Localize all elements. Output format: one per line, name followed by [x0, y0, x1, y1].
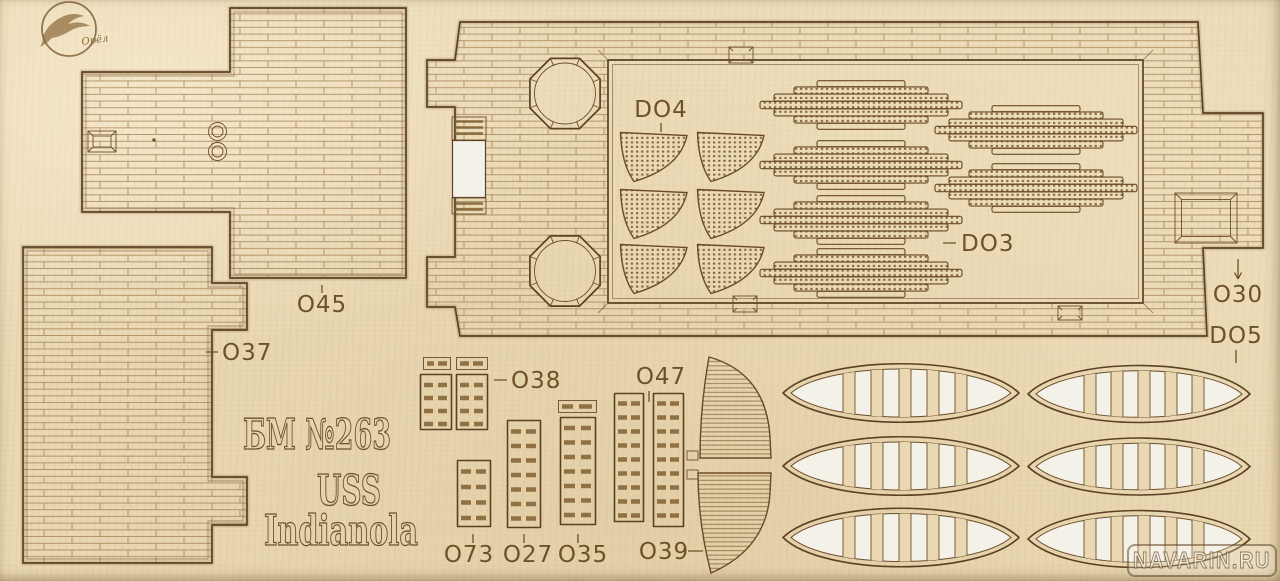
kit-number-text: БМ №263 [243, 410, 391, 459]
ladder-strip-o27 [508, 421, 541, 528]
part-label-do3: DO3 [961, 231, 1014, 257]
plywood-sheet: Орёл [0, 0, 1280, 581]
brand-logo: Орёл [40, 2, 109, 56]
part-label-o47: O47 [636, 364, 686, 390]
part-label-o39: O39 [639, 539, 689, 565]
block-set-o38 [421, 358, 488, 430]
part-label-o37: O37 [222, 340, 272, 366]
laser-cut-parts: Орёл [0, 0, 1280, 581]
deck-piece-o37 [23, 247, 247, 563]
grating-triangles-do4 [621, 133, 765, 294]
kit-title: БМ №263 USS Indianola [243, 410, 418, 555]
paddlebox-side-o39 [687, 357, 771, 573]
part-label-o30: O30 [1213, 282, 1263, 308]
part-label-o35: O35 [558, 542, 608, 568]
ladder-strip-o73 [458, 461, 491, 527]
part-label-o27: O27 [503, 542, 553, 568]
part-label-o38: O38 [511, 368, 561, 394]
part-label-do5: DO5 [1209, 323, 1262, 349]
part-label-o45: O45 [297, 292, 347, 318]
part-label-o73: O73 [444, 542, 494, 568]
ladder-strip-o35 [559, 401, 597, 525]
part-label-do4: DO4 [634, 97, 687, 123]
watermark-text: NAVARIN.RU [1133, 547, 1271, 573]
paddle-stacks-do3 [760, 81, 1137, 298]
logo-brand-text: Орёл [81, 33, 109, 48]
deck-piece-o45 [82, 8, 406, 278]
ladder-strips-o47 [615, 394, 684, 527]
ship-name-text: Indianola [264, 506, 418, 555]
watermark: NAVARIN.RU [1128, 545, 1276, 576]
